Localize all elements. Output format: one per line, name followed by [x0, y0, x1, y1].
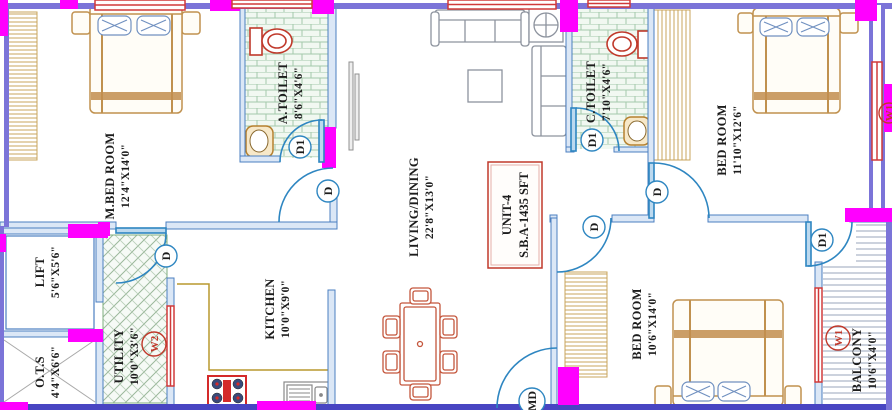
svg-text:10'0"X9'0": 10'0"X9'0": [280, 280, 292, 338]
room-label-kitchen: KITCHEN 10'0"X9'0": [263, 278, 292, 339]
room-label-living-dining: LIVING/DINING 22'8"X13'0": [407, 157, 436, 257]
svg-text:LIFT: LIFT: [33, 256, 47, 287]
door-label-d1-atoilet: D1: [293, 140, 307, 155]
unit-area: S.B.A-1435 SFT: [517, 171, 531, 257]
svg-text:10'0"X3'6": 10'0"X3'6": [129, 327, 141, 385]
bedroom-top-wardrobe: [654, 10, 690, 160]
svg-text:C.TOILET: C.TOILET: [584, 61, 598, 124]
bedroom-bottom-wardrobe: [565, 272, 607, 377]
mbed-bed: [72, 5, 200, 113]
svg-text:KITCHEN: KITCHEN: [263, 278, 277, 339]
door-label-d-bedroom-bottom: D: [587, 222, 601, 231]
svg-text:22'8"X13'0": 22'8"X13'0": [424, 175, 436, 239]
svg-text:UTILITY: UTILITY: [112, 329, 126, 384]
room-label-bed-room-bottom: BED ROOM 10'6"X14'0": [630, 288, 659, 360]
c-toilet-wc: [607, 31, 650, 58]
door-label-d1-balcony: D1: [815, 233, 829, 248]
svg-text:O.T.S: O.T.S: [33, 356, 47, 388]
kitchen-counter-edge: [177, 284, 331, 370]
room-label-lift: LIFT 5'6"X5'6": [33, 246, 62, 298]
bedroom-bottom-bed: [655, 300, 801, 406]
svg-text:4'4"X6'6": 4'4"X6'6": [50, 346, 62, 398]
a-toilet-basin: [246, 126, 273, 157]
bedroom-top-bed: [738, 8, 858, 113]
window-label-w1-balcony: W1: [833, 330, 845, 347]
svg-text:7'10"X4'6": 7'10"X4'6": [601, 63, 613, 121]
svg-text:12'4"X14'0": 12'4"X14'0": [120, 144, 132, 208]
window-label-w1-bedroom: W1: [884, 105, 892, 122]
floor-plan-svg: D1 D D1 D D D D1 MD W2 W1 W1 UNIT-4 S.B.…: [0, 0, 892, 410]
mbed-wardrobe: [5, 12, 37, 160]
svg-text:A.TOILET: A.TOILET: [276, 62, 290, 125]
svg-text:10'6"X4'0": 10'6"X4'0": [867, 331, 879, 389]
c-toilet-basin: [624, 117, 650, 145]
room-label-m-bed-room: M.BED ROOM 12'4"X14'0": [103, 132, 132, 219]
room-label-bed-room-top: BED ROOM 11'10"X12'6": [715, 104, 744, 176]
floor-plan-canvas: D1 D D1 D D D D1 MD W2 W1 W1 UNIT-4 S.B.…: [0, 0, 892, 410]
window-label-w2: W2: [149, 335, 161, 352]
a-toilet-wc: [250, 28, 292, 55]
svg-text:LIVING/DINING: LIVING/DINING: [407, 157, 421, 257]
unit-info-box: UNIT-4 S.B.A-1435 SFT: [488, 162, 542, 268]
door-label-md-main: MD: [525, 391, 539, 410]
door-label-d-utility: D: [159, 251, 173, 260]
svg-text:11'10"X12'6": 11'10"X12'6": [732, 105, 744, 174]
door-label-d-bedroom-top: D: [650, 187, 664, 196]
door-label-d1-ctoilet: D1: [585, 133, 599, 148]
balcony-floor-top: [856, 224, 888, 266]
stove: [208, 376, 246, 406]
dining-set: [383, 288, 457, 400]
coffee-table: [468, 70, 502, 102]
svg-text:8'6"X4'6": 8'6"X4'6": [293, 67, 305, 119]
svg-text:M.BED ROOM: M.BED ROOM: [103, 132, 117, 219]
unit-number: UNIT-4: [500, 194, 514, 235]
tv-unit: [349, 62, 359, 150]
door-label-d-mbed: D: [321, 186, 335, 195]
svg-text:BALCONY: BALCONY: [850, 328, 864, 393]
svg-text:5'6"X5'6": 5'6"X5'6": [50, 246, 62, 298]
svg-text:10'6"X14'0": 10'6"X14'0": [647, 292, 659, 356]
svg-text:BED ROOM: BED ROOM: [715, 104, 729, 176]
svg-text:BED ROOM: BED ROOM: [630, 288, 644, 360]
